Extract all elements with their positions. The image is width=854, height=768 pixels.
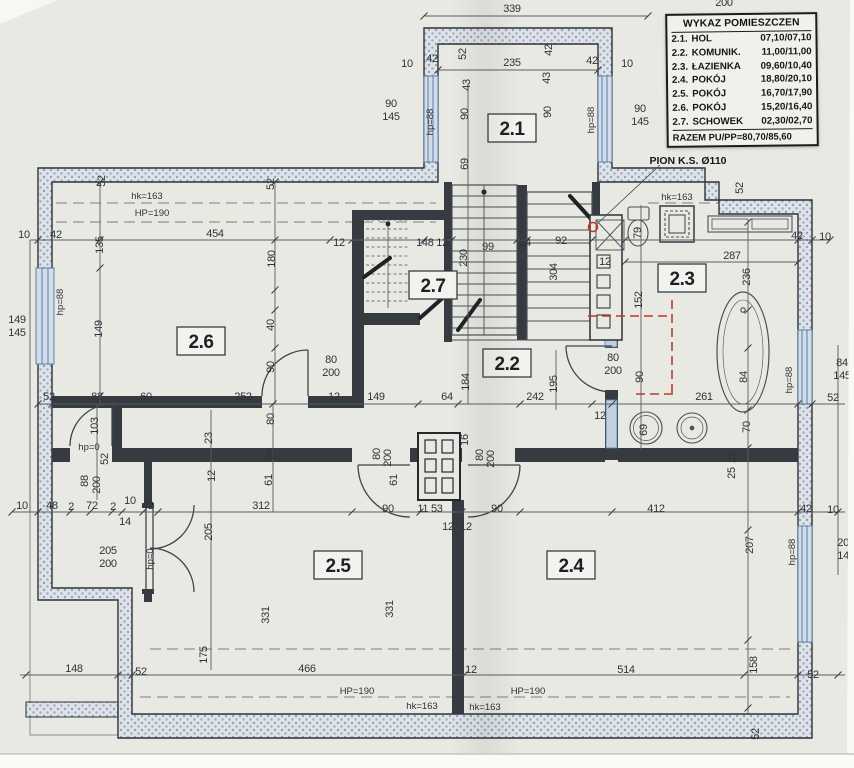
headroom-label: HP=190: [340, 686, 375, 697]
dim-label: 52: [750, 728, 762, 740]
legend-room-area: 16,70/17,90: [761, 86, 812, 100]
dim-label: 90: [382, 503, 394, 515]
dim-label: 90: [634, 103, 646, 115]
dim-label: 52: [99, 453, 111, 465]
dim-label: 236: [741, 268, 753, 286]
dim-label: 80: [265, 413, 277, 425]
dim-label: 12: [333, 237, 345, 249]
dim-label: 42: [791, 230, 803, 242]
dim-label: 70: [741, 421, 753, 433]
dim-label: 42: [426, 53, 438, 65]
dim-label: 331: [384, 600, 396, 618]
window-right-upper: [798, 330, 812, 404]
dim-label: 42: [142, 500, 154, 512]
dim-label: 12: [328, 391, 340, 403]
dim-label: 10: [819, 231, 831, 243]
dim-label: 180: [266, 250, 278, 268]
dim-label: 149: [367, 391, 385, 403]
legend-room-no: 2.5.: [672, 88, 692, 102]
dim-label: 11 53: [417, 503, 442, 515]
dim-label: 88: [79, 475, 91, 487]
room-number: 2.5: [326, 556, 352, 577]
dim-label: 84: [738, 371, 750, 383]
dim-label: 331: [260, 606, 272, 624]
dim-label: 12: [206, 470, 218, 482]
dim-label: 79: [632, 227, 644, 239]
dim-label: 12: [594, 410, 606, 422]
room-label-2.5: 2.5: [314, 551, 362, 579]
dim-label: 175: [198, 646, 210, 664]
dim-label: 10: [401, 58, 413, 70]
legend-room-no: 2.4.: [672, 74, 692, 88]
room-number: 2.3: [670, 269, 695, 290]
dim-label: 145: [8, 327, 26, 339]
dim-label: 205: [99, 545, 117, 557]
dim-label: 23: [203, 432, 215, 444]
dim-label: 454: [206, 228, 224, 240]
legend-room-no: 2.2.: [672, 46, 692, 60]
dim-label: 61: [388, 474, 400, 486]
dim-label: 90: [265, 361, 277, 373]
chimney-bathroom: [590, 215, 624, 340]
dim-label: 103: [89, 417, 101, 435]
window-bay-right: [598, 76, 612, 162]
dim-label: 60: [140, 391, 152, 403]
paper-crease: [450, 0, 520, 753]
dim-label: 158: [748, 656, 760, 674]
sill-label: hp=0: [78, 442, 99, 453]
dim-label: 52: [734, 182, 746, 194]
dim-label: 48: [46, 500, 58, 512]
legend-room-area: 11,00/11,00: [761, 45, 811, 59]
legend-room-name: ŁAZIENKA: [692, 59, 761, 74]
dim-label: 90: [542, 106, 554, 118]
knee-wall-label: hk=163: [661, 192, 692, 203]
dim-label: 195: [548, 375, 560, 393]
dim-label: 200: [715, 0, 733, 9]
dim-label: 84: [836, 357, 848, 369]
dim-label: 252: [234, 391, 252, 403]
legend-room-area: 02,30/02,70: [761, 114, 812, 128]
dim-label: 10: [124, 495, 136, 507]
sill-label: hp=88: [787, 539, 798, 566]
legend-total: RAZEM PU/PP=80,70/85,60: [673, 129, 813, 144]
legend-room-no: 2.1.: [671, 33, 691, 47]
dim-label: 207: [744, 536, 756, 554]
sill-label: hp=88: [784, 367, 795, 394]
dim-label: 52: [827, 392, 839, 404]
room-label-2.4: 2.4: [547, 551, 595, 579]
sill-label: hp=0: [145, 548, 156, 569]
dim-label: 52: [135, 666, 147, 678]
dim-label: 514: [617, 664, 635, 676]
legend-room-name: POKÓJ: [692, 101, 761, 116]
room-number: 2.4: [559, 556, 585, 577]
room-label-2.3: 2.3: [658, 264, 706, 292]
dim-label: 14: [119, 516, 131, 528]
dim-label: 27: [726, 451, 738, 463]
dim-label: 149: [93, 320, 105, 338]
dim-label: 312: [252, 500, 270, 512]
dim-label: 61: [263, 474, 275, 486]
dim-label: 10: [18, 229, 30, 241]
dim-label: 72: [86, 500, 98, 512]
legend-title: WYKAZ POMIESZCZEN: [671, 16, 811, 33]
dim-label: 42: [800, 503, 812, 515]
dim-label: 148 12: [416, 237, 448, 249]
dim-label: 200: [604, 365, 622, 377]
dim-label: 12: [599, 256, 611, 268]
knee-wall-label: hk=163: [131, 191, 162, 202]
legend-row: 2.7. SCHOWEK 02,30/02,70: [672, 114, 812, 129]
floor-plan-scan: 339 200 10 42 235 42 10 90 145 90 145 hk…: [0, 0, 854, 768]
window-left: [36, 268, 54, 364]
dim-label: 2: [68, 501, 74, 513]
dim-label: 242: [526, 391, 544, 403]
legend-room-area: 18,80/20,10: [761, 72, 812, 86]
legend-room-no: 2.6.: [672, 101, 692, 115]
dim-label: 80: [325, 354, 337, 366]
legend-room-no: 2.3.: [672, 60, 692, 74]
dim-label: 145: [382, 111, 400, 123]
dim-label: 412: [647, 503, 665, 515]
dim-label: 69: [638, 424, 650, 436]
dim-label: 200: [91, 476, 103, 494]
dim-label: 148: [65, 663, 83, 675]
headroom-label: HP=190: [135, 208, 170, 219]
sill-label: hp=88: [425, 109, 436, 136]
dim-label: 261: [695, 391, 713, 403]
dim-label: 145: [631, 116, 649, 128]
legend-room-name: KOMUNIK.: [692, 46, 762, 61]
legend-room-name: POKÓJ: [692, 87, 761, 102]
window-right-lower: [798, 526, 812, 642]
dim-label: 200: [99, 558, 117, 570]
dim-label: 42: [543, 44, 555, 56]
dim-label: 152: [633, 291, 645, 309]
dim-label: 10: [827, 504, 839, 516]
dim-label: 90: [634, 371, 646, 383]
dim-label: 43: [541, 72, 553, 84]
room-schedule-legend: WYKAZ POMIESZCZEN 2.1. HOL 07,10/07,10 2…: [665, 12, 819, 148]
dim-label: 287: [723, 250, 741, 262]
room-number: 2.7: [421, 276, 446, 297]
dim-label: 466: [298, 663, 316, 675]
legend-room-name: HOL: [691, 32, 760, 47]
dim-label: 52: [807, 669, 819, 681]
legend-room-area: 15,20/16,40: [761, 100, 812, 114]
dim-label: 24: [519, 237, 531, 249]
legend-room-no: 2.7.: [672, 115, 692, 129]
dim-label: 92: [555, 235, 567, 247]
legend-room-name: SCHOWEK: [692, 114, 761, 129]
dim-label: 52: [96, 175, 108, 187]
legend-room-area: 09,60/10,40: [761, 59, 812, 73]
dim-label: 88: [91, 391, 103, 403]
dim-label: 149: [8, 314, 26, 326]
dim-label: 25: [265, 448, 277, 460]
sewer-stack-label: PION K.S. Ø110: [649, 155, 726, 167]
dim-label: 42: [586, 55, 598, 67]
legend-room-name: POKÓJ: [692, 73, 761, 88]
room-number: 2.6: [189, 332, 214, 353]
dim-label: 145: [833, 370, 851, 382]
sill-label: hp=88: [586, 107, 597, 134]
dim-label: 135: [94, 236, 106, 254]
legend-room-area: 07,10/07,10: [760, 31, 811, 45]
knee-wall-label: hk=163: [406, 701, 437, 712]
dim-label: 200: [322, 367, 340, 379]
dim-label: 200: [382, 449, 394, 467]
dim-label: 42: [50, 229, 62, 241]
dim-label: 52: [43, 391, 55, 403]
dim-label: 304: [548, 263, 560, 281]
dim-label: 52: [265, 178, 277, 190]
dim-label: 205: [203, 523, 215, 541]
sill-label: hp=88: [55, 289, 66, 316]
dim-label: 10: [621, 58, 633, 70]
dim-label: 2: [110, 501, 116, 513]
dim-label: 80: [607, 352, 619, 364]
dim-label: 90: [385, 98, 397, 110]
room-label-2.7: 2.7: [409, 271, 457, 299]
room-label-2.6: 2.6: [177, 327, 225, 355]
dim-label: 10: [16, 500, 28, 512]
dim-label: 25: [726, 467, 738, 479]
dim-label: 40: [265, 319, 277, 331]
